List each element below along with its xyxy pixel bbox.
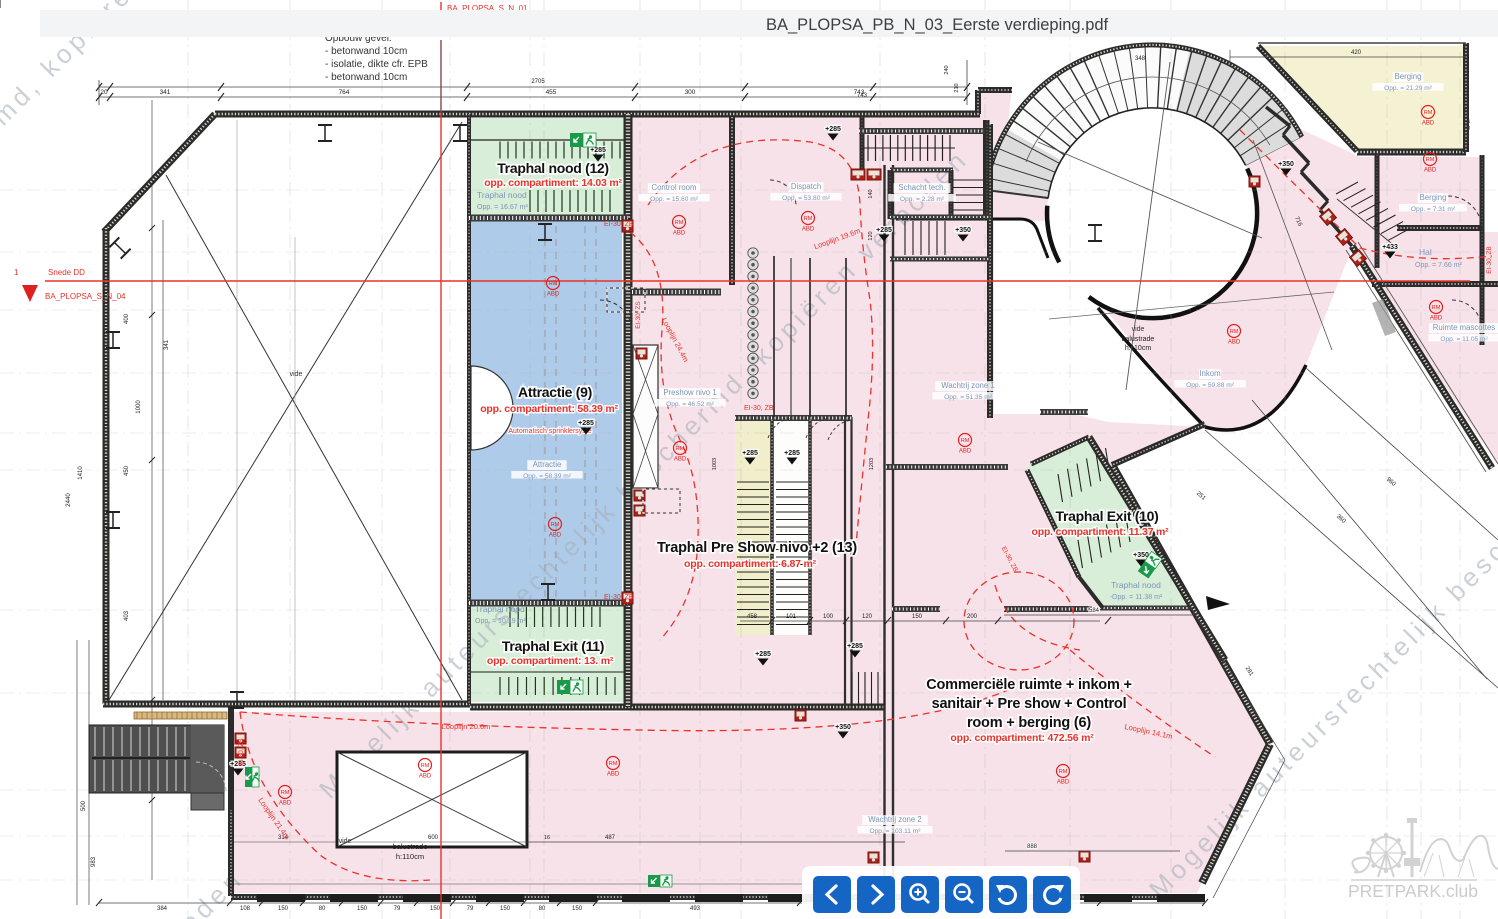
svg-text:Dispatch: Dispatch (791, 182, 821, 191)
svg-text:Automatisch sprinklersyste: Automatisch sprinklersyste (508, 428, 591, 435)
svg-text:ABD: ABD (1424, 168, 1437, 174)
svg-text:Traphal nood (12): Traphal nood (12) (497, 160, 609, 176)
svg-text:Opp. = 58.39 m²: Opp. = 58.39 m² (523, 473, 572, 480)
svg-text:341: 341 (160, 89, 171, 96)
svg-text:RM: RM (1424, 110, 1433, 116)
svg-text:ABD: ABD (279, 801, 292, 807)
svg-text:Looplijn 20.6m: Looplijn 20.6m (442, 722, 491, 731)
svg-text:1003: 1003 (712, 458, 718, 470)
svg-text:200: 200 (967, 614, 978, 620)
svg-text:- isolatie, dikte cfr. EPB: - isolatie, dikte cfr. EPB (325, 59, 428, 70)
svg-text:Opp. = 59.88 m²: Opp. = 59.88 m² (1186, 382, 1235, 389)
svg-text:RM: RM (961, 438, 970, 444)
svg-text:743: 743 (857, 93, 868, 99)
svg-text:Wachtrij zone 1: Wachtrij zone 1 (941, 381, 994, 390)
svg-text:487: 487 (605, 835, 616, 841)
svg-text:140: 140 (868, 189, 874, 198)
svg-text:RM: RM (551, 522, 560, 528)
svg-text:2705: 2705 (531, 79, 545, 85)
svg-text:RM: RM (1230, 329, 1239, 335)
svg-text:+285: +285 (755, 651, 771, 658)
svg-text:opp. compartiment: 472.56 m²: opp. compartiment: 472.56 m² (950, 732, 1094, 744)
svg-text:1203: 1203 (869, 458, 875, 470)
svg-text:EI-30, ZB: EI-30, ZB (744, 405, 774, 412)
svg-text:2440: 2440 (66, 493, 72, 507)
svg-text:1410: 1410 (78, 466, 84, 480)
svg-text:vide: vide (290, 371, 303, 378)
svg-text:493: 493 (690, 906, 701, 912)
svg-text:764: 764 (339, 89, 350, 96)
svg-text:vide: vide (1132, 326, 1145, 333)
svg-text:108: 108 (240, 906, 251, 912)
svg-text:opp. compartiment: 14.03 m²: opp. compartiment: 14.03 m² (484, 177, 622, 189)
svg-text:+433: +433 (1382, 244, 1398, 251)
svg-text:+285: +285 (825, 126, 841, 133)
svg-text:+350: +350 (1278, 161, 1294, 168)
svg-text:ABD: ABD (547, 292, 560, 298)
svg-text:1: 1 (14, 268, 19, 277)
svg-text:- betonwand 10cm: - betonwand 10cm (325, 72, 407, 83)
svg-text:ABD: ABD (674, 457, 687, 463)
svg-text:Ruimte mascottes: Ruimte mascottes (1433, 323, 1495, 332)
svg-text:120: 120 (868, 231, 874, 240)
svg-text:Control room: Control room (651, 183, 696, 192)
svg-text:+285: +285 (742, 450, 758, 457)
svg-text:opp. compartiment: 13. m²: opp. compartiment: 13. m² (487, 655, 614, 667)
svg-text:Attractie (9): Attractie (9) (518, 384, 592, 400)
svg-text:Opp. = 21.29 m²: Opp. = 21.29 m² (1384, 85, 1433, 92)
svg-text:EI-30, ZB: EI-30, ZB (604, 221, 634, 228)
svg-text:300: 300 (685, 89, 696, 96)
svg-text:+285: +285 (578, 420, 594, 427)
svg-text:balustrade: balustrade (392, 842, 427, 851)
svg-text:101: 101 (786, 614, 797, 620)
svg-text:ABD: ABD (1057, 780, 1070, 786)
svg-text:Commerciële ruimte + inkom +: Commerciële ruimte + inkom + (926, 677, 1132, 693)
svg-text:RM: RM (1059, 769, 1068, 775)
svg-text:79: 79 (394, 906, 401, 912)
svg-text:348: 348 (1135, 56, 1146, 62)
svg-text:455: 455 (546, 89, 557, 96)
svg-text:sanitair + Pre show + Control: sanitair + Pre show + Control (932, 696, 1127, 712)
svg-text:Snede DD: Snede DD (48, 268, 85, 277)
svg-text:vide: vide (339, 838, 352, 845)
svg-text:150: 150 (572, 906, 583, 912)
svg-text:ABD: ABD (607, 772, 620, 778)
svg-text:ABD: ABD (673, 231, 686, 237)
svg-text:ABD: ABD (1430, 316, 1443, 322)
svg-text:room + berging (6): room + berging (6) (967, 715, 1091, 731)
svg-text:120: 120 (862, 614, 873, 620)
svg-text:150: 150 (430, 906, 441, 912)
svg-text:Opp. = 46.52 m²: Opp. = 46.52 m² (666, 401, 715, 408)
svg-text:RM: RM (609, 761, 618, 767)
svg-text:80: 80 (539, 906, 546, 912)
svg-text:BA_PLOPSA_PB_N_03_Eerste verdi: BA_PLOPSA_PB_N_03_Eerste verdieping.pdf (766, 16, 1109, 34)
svg-text:Opp. = 15.60 m²: Opp. = 15.60 m² (650, 196, 699, 203)
svg-text:RM: RM (1426, 157, 1435, 163)
svg-text:- betonwand 10cm: - betonwand 10cm (325, 46, 407, 57)
svg-text:ABD: ABD (1422, 121, 1435, 127)
svg-text:RM: RM (421, 763, 430, 769)
svg-text:opp. compartiment: 6.87 m²: opp. compartiment: 6.87 m² (684, 558, 817, 570)
svg-text:+285: +285 (590, 147, 606, 154)
svg-text:Opp. = 7.31 m²: Opp. = 7.31 m² (1411, 206, 1456, 213)
svg-text:+285: +285 (876, 227, 892, 234)
svg-text:PRETPARK.club: PRETPARK.club (1348, 881, 1478, 901)
svg-text:983: 983 (91, 856, 97, 867)
svg-text:888: 888 (1027, 844, 1038, 850)
svg-text:458: 458 (747, 614, 758, 620)
svg-text:20: 20 (100, 89, 108, 96)
svg-text:584: 584 (1089, 608, 1100, 614)
svg-text:384: 384 (157, 906, 168, 912)
svg-text:450: 450 (124, 465, 130, 476)
svg-text:150: 150 (357, 906, 368, 912)
svg-text:Hal: Hal (1419, 247, 1432, 257)
svg-text:balustrade: balustrade (1122, 336, 1155, 343)
svg-text:RM: RM (804, 216, 813, 222)
svg-text:RM: RM (549, 281, 558, 287)
svg-text:opp. compartiment: 58.39 m²: opp. compartiment: 58.39 m² (480, 403, 618, 415)
svg-text:Berging: Berging (1420, 193, 1447, 202)
svg-text:79: 79 (467, 906, 474, 912)
svg-text:Opp. = 16.67 m²: Opp. = 16.67 m² (477, 204, 528, 211)
svg-text:80: 80 (319, 906, 326, 912)
svg-text:RM: RM (1432, 305, 1441, 311)
svg-text:h:110cm: h:110cm (396, 852, 424, 861)
svg-text:150: 150 (500, 906, 511, 912)
svg-text:Opp. = 53.80 m²: Opp. = 53.80 m² (782, 195, 831, 202)
svg-text:420: 420 (1351, 50, 1362, 56)
svg-text:+285: +285 (784, 450, 800, 457)
svg-text:RM: RM (281, 790, 290, 796)
svg-text:Opp. = 2.28 m²: Opp. = 2.28 m² (900, 196, 945, 203)
svg-text:Opp. = 7.66 m²: Opp. = 7.66 m² (1415, 262, 1463, 269)
svg-text:BA_PLOPSA_S_N_04: BA_PLOPSA_S_N_04 (45, 292, 126, 301)
svg-text:+285: +285 (847, 643, 863, 650)
svg-text:ABD: ABD (549, 533, 562, 539)
svg-text:Wachtrij zone 2: Wachtrij zone 2 (868, 815, 921, 824)
svg-text:Preshow nivo 1: Preshow nivo 1 (663, 388, 716, 397)
svg-text:ABD: ABD (959, 449, 972, 455)
svg-text:16: 16 (544, 835, 550, 841)
svg-text:403: 403 (124, 610, 130, 621)
svg-text:ABD: ABD (802, 227, 815, 233)
svg-text:150: 150 (912, 614, 923, 620)
svg-text:ABD: ABD (419, 774, 432, 780)
svg-text:1000: 1000 (136, 400, 142, 414)
svg-text:Traphal nood: Traphal nood (475, 604, 525, 614)
svg-text:500: 500 (81, 800, 87, 811)
svg-text:-Opp. = 11.38 m²: -Opp. = 11.38 m² (1110, 594, 1163, 601)
svg-text:RM: RM (675, 220, 684, 226)
svg-text:Traphal nood: Traphal nood (1111, 580, 1161, 590)
svg-text:Traphal Exit (10): Traphal Exit (10) (1055, 508, 1158, 524)
svg-text:h:110cm: h:110cm (1125, 345, 1151, 352)
svg-text:Opp. = 51.35 m²: Opp. = 51.35 m² (944, 394, 993, 401)
svg-text:ABD: ABD (1228, 340, 1241, 346)
svg-text:+350: +350 (955, 227, 971, 234)
svg-text:EI-30, ZS: EI-30, ZS (635, 301, 642, 329)
svg-text:210: 210 (954, 83, 960, 92)
svg-text:100: 100 (823, 614, 834, 620)
svg-text:400: 400 (124, 313, 130, 324)
svg-text:240: 240 (944, 65, 950, 74)
svg-text:341: 341 (164, 339, 170, 350)
svg-text:Attractie: Attractie (533, 460, 562, 469)
svg-text:Traphal nood: Traphal nood (477, 190, 527, 200)
svg-text:Opp. = 103.11 m²: Opp. = 103.11 m² (869, 828, 921, 835)
svg-text:Schacht tech.: Schacht tech. (898, 183, 945, 192)
svg-text:Opp. = 10.19 m²: Opp. = 10.19 m² (475, 618, 526, 625)
svg-text:EI-30, ZB: EI-30, ZB (1486, 246, 1493, 273)
svg-text:opp. compartiment: 11.37 m²: opp. compartiment: 11.37 m² (1032, 526, 1170, 538)
svg-text:Berging: Berging (1395, 72, 1422, 81)
svg-text:Traphal Pre Show nivo +2 (13): Traphal Pre Show nivo +2 (13) (657, 540, 857, 556)
svg-text:EI-30, ZB: EI-30, ZB (604, 594, 634, 601)
svg-text:Traphal Exit (11): Traphal Exit (11) (502, 638, 604, 654)
svg-text:150: 150 (278, 906, 289, 912)
svg-text:+350: +350 (835, 724, 851, 731)
svg-text:Opp. = 11.05 m²: Opp. = 11.05 m² (1440, 336, 1488, 343)
svg-text:600: 600 (428, 835, 439, 841)
svg-text:Inkom: Inkom (1199, 369, 1220, 378)
svg-text:RM: RM (676, 446, 685, 452)
svg-text:EI-30, ZS: EI-30, ZS (238, 738, 245, 766)
